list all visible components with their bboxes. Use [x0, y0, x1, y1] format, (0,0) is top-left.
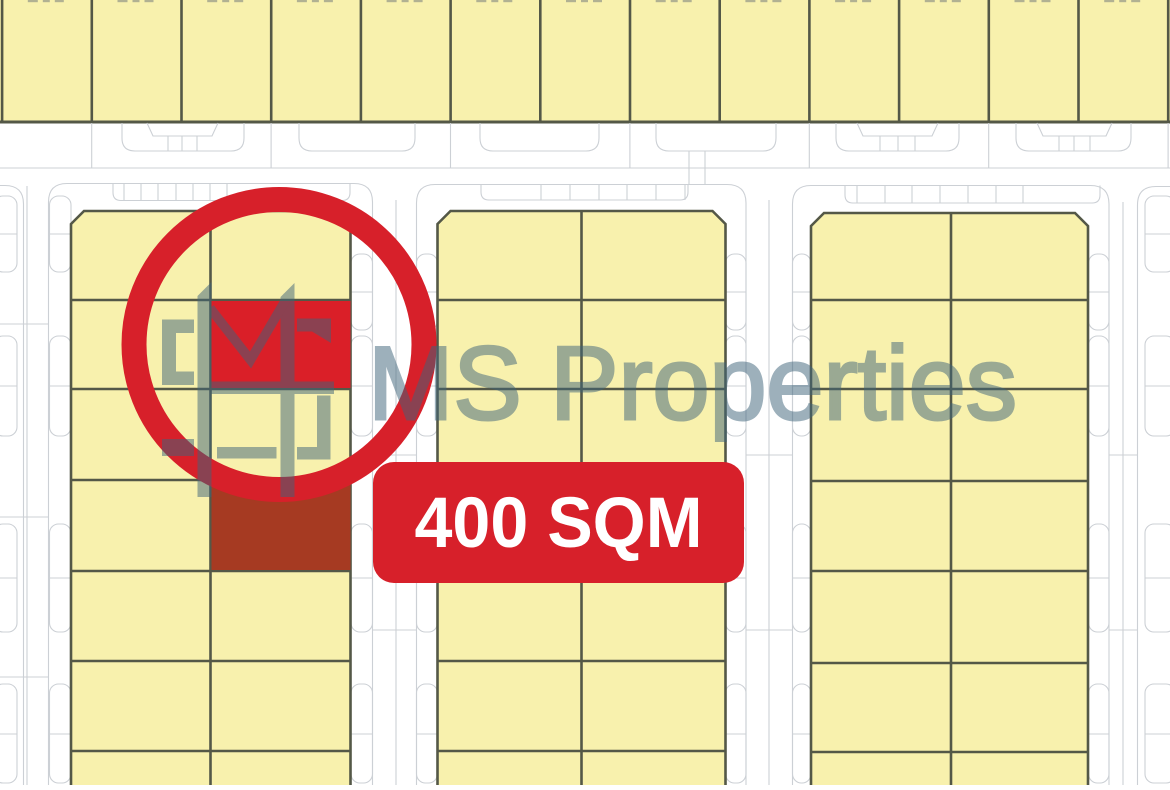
svg-text:MS Properties: MS Properties [368, 326, 1017, 442]
svg-text:400 SQM: 400 SQM [415, 484, 703, 563]
